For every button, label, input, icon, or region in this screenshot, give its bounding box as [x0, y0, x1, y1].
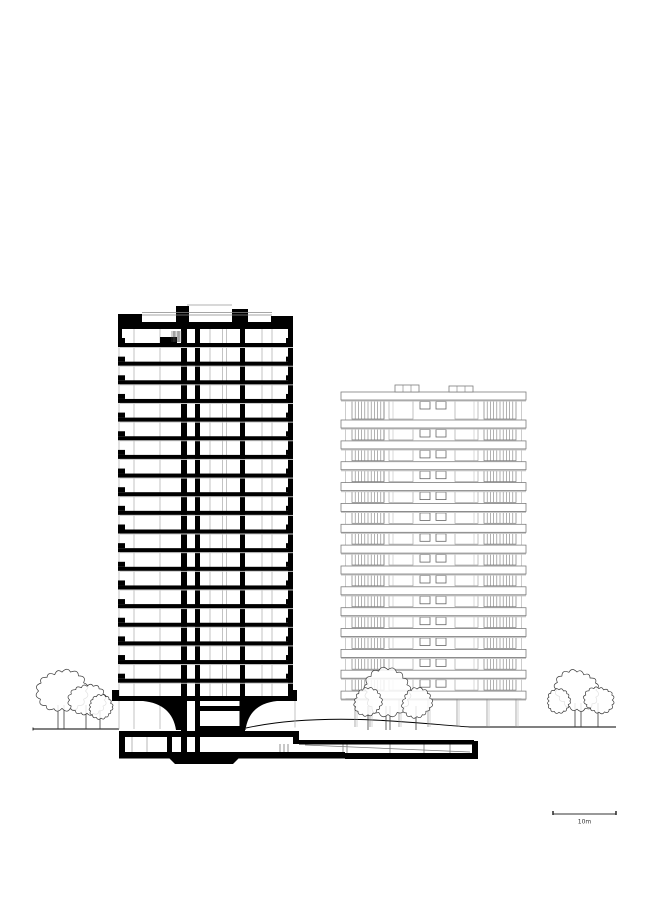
section-tower [112, 305, 297, 758]
scale-bar-label: 10m [578, 819, 592, 826]
drawing-canvas: 10m [0, 0, 650, 919]
basement [119, 731, 478, 764]
elevation-tower [341, 385, 526, 727]
tree-group-right [547, 669, 614, 727]
tree-group-left [36, 669, 113, 729]
drawing-content [33, 305, 616, 764]
architectural-section-drawing: 10m [0, 0, 650, 919]
scale-bar: 10m [553, 811, 616, 826]
ground-lines [33, 719, 616, 730]
